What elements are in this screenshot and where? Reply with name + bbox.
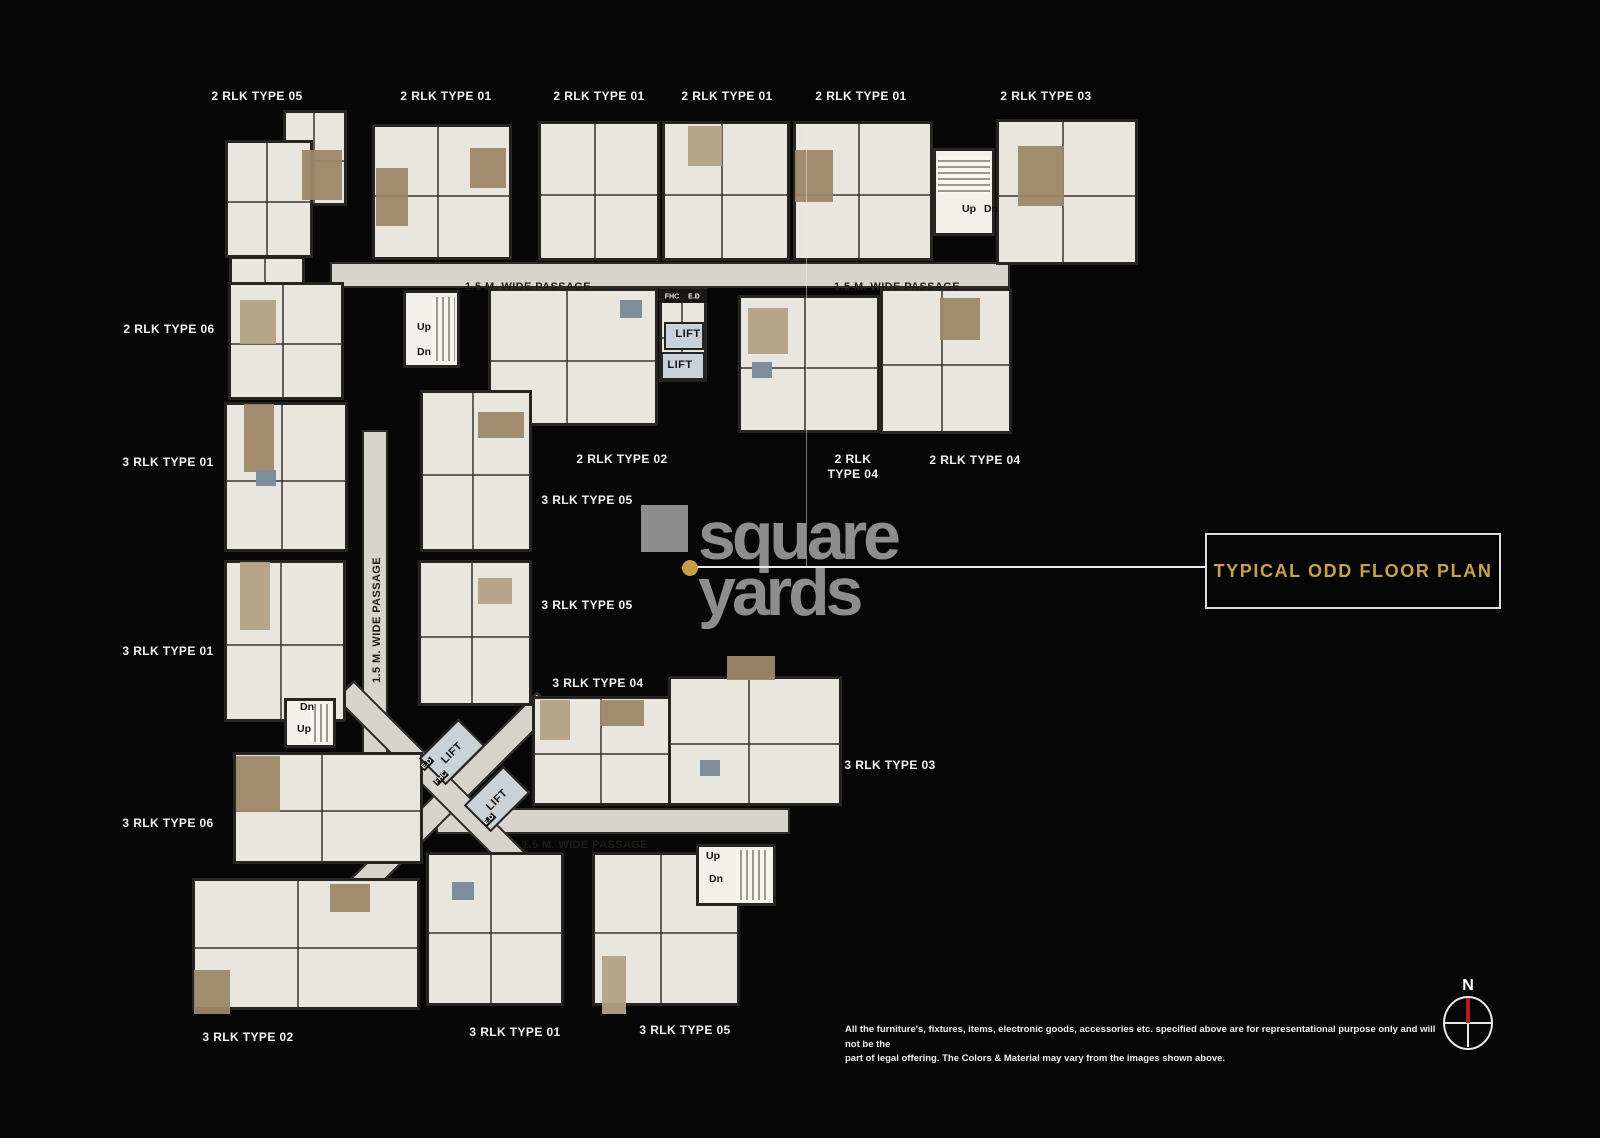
- room-accent: [330, 884, 370, 912]
- lift-label: LIFT: [675, 328, 700, 340]
- room-accent: [748, 308, 788, 354]
- room-accent: [478, 412, 524, 438]
- unit-label-2rlk-type05: 2 RLK TYPE 05: [211, 89, 302, 103]
- room-accent: [236, 756, 280, 812]
- room-accent: [376, 168, 408, 226]
- plan-title: TYPICAL ODD FLOOR PLAN: [1214, 561, 1493, 582]
- stair-treads: [938, 156, 990, 194]
- ed-label: E.D: [687, 294, 701, 301]
- stair-up-label: Up: [417, 321, 431, 333]
- bath-accent: [752, 362, 772, 378]
- room-accent: [600, 700, 644, 726]
- passage-label: 1.5 M. WIDE PASSAGE: [465, 281, 591, 293]
- unit-footprint: [224, 402, 348, 552]
- room-accent: [940, 298, 980, 340]
- fhc-label: FHC: [664, 294, 680, 301]
- unit-label-2rlk-type02: 2 RLK TYPE 02: [576, 452, 667, 466]
- passage-label: 1.5 M. WIDE PASSAGE: [834, 281, 960, 293]
- room-accent: [240, 300, 276, 344]
- room-accent: [470, 148, 506, 188]
- unit-label-2rlk-type01: 2 RLK TYPE 01: [553, 89, 644, 103]
- compass-icon: [1443, 996, 1493, 1050]
- passage-label: 1.5 M. WIDE PASSAGE: [522, 839, 648, 851]
- room-accent: [727, 656, 775, 680]
- stair-up-label: Up: [297, 723, 311, 735]
- unit-footprint: [426, 852, 564, 1006]
- unit-footprint: [225, 140, 313, 258]
- unit-label-3rlk-type05: 3 RLK TYPE 05: [541, 598, 632, 612]
- unit-label-3rlk-type04: 3 RLK TYPE 04: [552, 676, 643, 690]
- room-accent: [302, 150, 342, 200]
- compass-north-needle: [1466, 998, 1470, 1023]
- stair-up-label: Up: [962, 203, 976, 215]
- compass-vertical-line: [1467, 1023, 1469, 1047]
- room-accent: [240, 562, 270, 630]
- stair-dn-label: Dn: [709, 873, 723, 885]
- unit-label-3rlk-type01: 3 RLK TYPE 01: [122, 644, 213, 658]
- watermark-word2: yards: [698, 558, 859, 626]
- bath-accent: [452, 882, 474, 900]
- staircase: [933, 148, 995, 236]
- stair-dn-label: Dn: [984, 203, 998, 215]
- room-accent: [478, 578, 512, 604]
- callout-leader-line: [697, 566, 1205, 568]
- unit-label-3rlk-type02: 3 RLK TYPE 02: [202, 1030, 293, 1044]
- bath-accent: [256, 470, 276, 486]
- callout-dot-icon: [682, 560, 698, 576]
- floor-plan: 2 RLK TYPE 052 RLK TYPE 012 RLK TYPE 012…: [0, 0, 1600, 1138]
- stair-treads: [736, 850, 770, 899]
- room-accent: [602, 956, 626, 1014]
- unit-label-2rlk-type04: 2 RLK TYPE 04: [828, 452, 879, 482]
- unit-footprint: [538, 121, 660, 261]
- unit-label-2rlk-type01: 2 RLK TYPE 01: [815, 89, 906, 103]
- room-accent: [244, 404, 274, 472]
- unit-label-3rlk-type05: 3 RLK TYPE 05: [541, 493, 632, 507]
- unit-label-2rlk-type01: 2 RLK TYPE 01: [681, 89, 772, 103]
- lift-label: LIFT: [667, 359, 692, 371]
- room-accent: [688, 126, 722, 166]
- plan-title-box: TYPICAL ODD FLOOR PLAN: [1205, 533, 1501, 609]
- unit-footprint: [418, 560, 532, 706]
- staircase: [403, 290, 460, 368]
- unit-label-3rlk-type01: 3 RLK TYPE 01: [122, 455, 213, 469]
- watermark-square-icon: [641, 505, 688, 552]
- disclaimer: All the furniture's, fixtures, items, el…: [845, 1023, 1445, 1067]
- unit-label-3rlk-type01: 3 RLK TYPE 01: [469, 1025, 560, 1039]
- unit-footprint: [668, 676, 842, 806]
- unit-label-3rlk-type03: 3 RLK TYPE 03: [844, 758, 935, 772]
- unit-label-2rlk-type04: 2 RLK TYPE 04: [929, 453, 1020, 467]
- disclaimer-line-2: part of legal offering. The Colors & Mat…: [845, 1052, 1445, 1067]
- unit-label-2rlk-type03: 2 RLK TYPE 03: [1000, 89, 1091, 103]
- bath-accent: [700, 760, 720, 776]
- unit-label-3rlk-type05: 3 RLK TYPE 05: [639, 1023, 730, 1037]
- stair-dn-label: Dn: [417, 346, 431, 358]
- stair-up-label: Up: [706, 850, 720, 862]
- unit-label-2rlk-type06: 2 RLK TYPE 06: [123, 322, 214, 336]
- passage-label: 1.5 M. WIDE PASSAGE: [371, 557, 383, 683]
- room-accent: [540, 700, 570, 740]
- room-accent: [795, 150, 833, 202]
- room-accent: [194, 970, 230, 1014]
- compass-north-label: N: [1462, 977, 1474, 995]
- stair-treads: [432, 297, 455, 360]
- unit-label-2rlk-type01: 2 RLK TYPE 01: [400, 89, 491, 103]
- stair-dn-label: Dn: [300, 701, 314, 713]
- bath-accent: [620, 300, 642, 318]
- unit-footprint: [662, 121, 790, 261]
- unit-label-3rlk-type06: 3 RLK TYPE 06: [122, 816, 213, 830]
- disclaimer-line-1: All the furniture's, fixtures, items, el…: [845, 1023, 1445, 1052]
- room-accent: [1018, 146, 1064, 206]
